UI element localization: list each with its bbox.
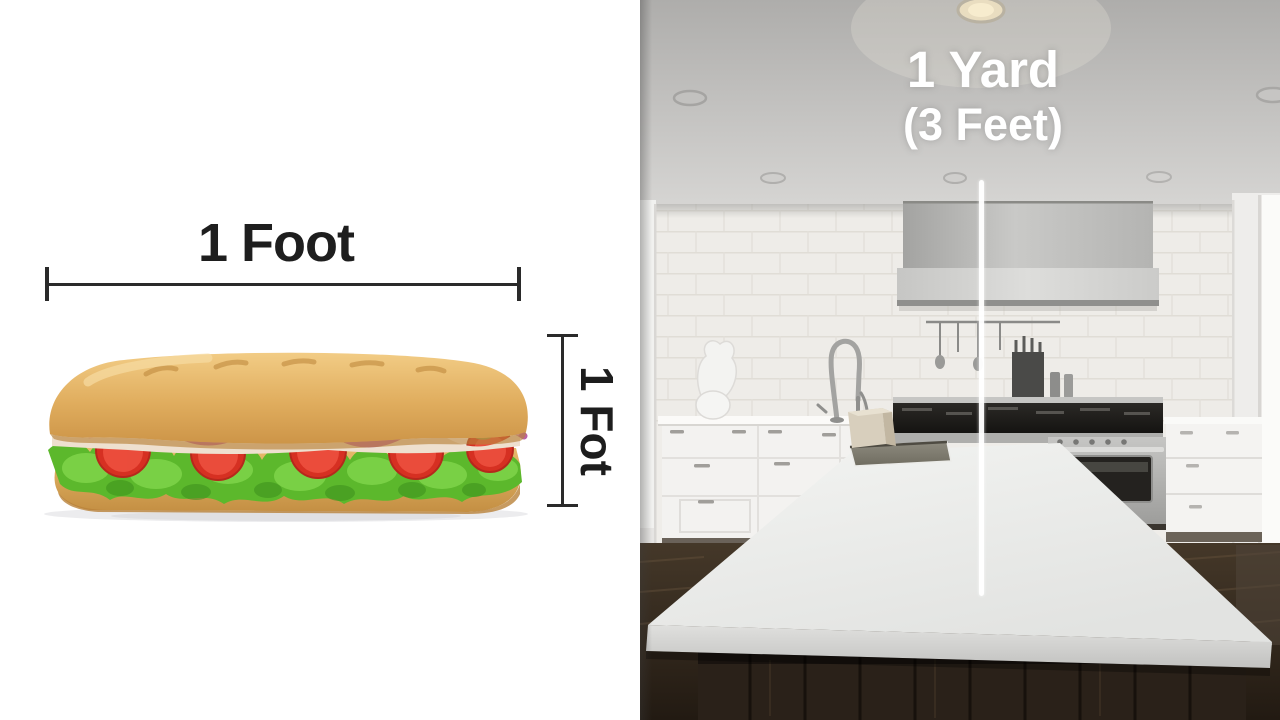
comparison-frame: 1 Foot	[0, 0, 1280, 720]
feet-label: (3 Feet)	[833, 102, 1133, 147]
foot-panel: 1 Foot	[0, 0, 640, 720]
width-dimension-tick-left	[45, 267, 49, 301]
yard-measurement-line	[979, 180, 984, 596]
counter-box-object	[848, 408, 896, 448]
range-hood	[897, 201, 1159, 311]
height-dimension-tick-top	[547, 334, 578, 337]
width-dimension-rule	[47, 283, 520, 286]
width-dimension-tick-right	[517, 267, 521, 301]
yard-panel: 1 Yard (3 Feet)	[640, 0, 1280, 720]
height-dimension-tick-bottom	[547, 504, 578, 507]
foot-width-label: 1 Foot	[126, 216, 426, 270]
right-cabinet	[1164, 417, 1262, 542]
top-bread	[49, 353, 528, 450]
sandwich-illustration	[28, 332, 548, 528]
photo-edge-shade	[640, 0, 652, 720]
yard-label: 1 Yard	[833, 44, 1133, 95]
stove-cooktop	[893, 397, 1163, 443]
